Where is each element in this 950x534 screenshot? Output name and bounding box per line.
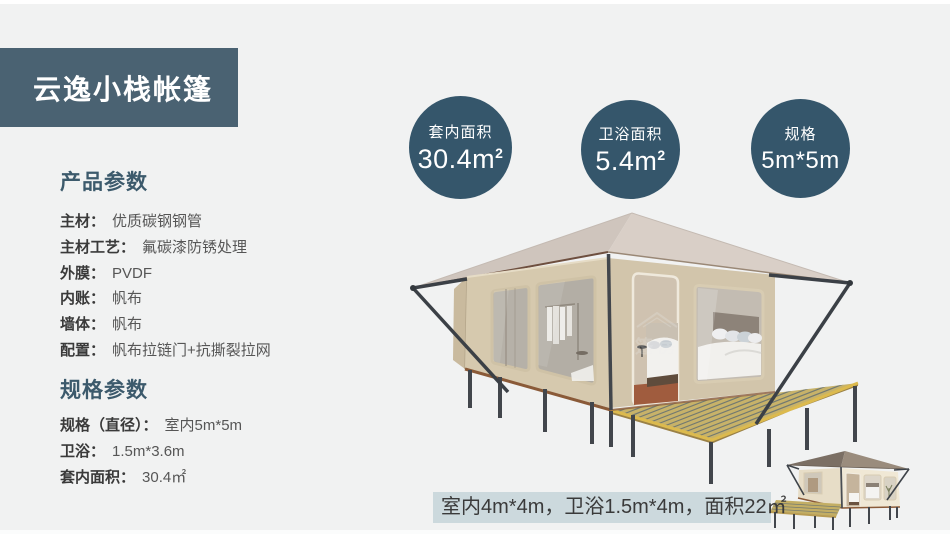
param-row-wall: 墙体：帆布 bbox=[60, 312, 380, 338]
thumb-roof bbox=[787, 451, 909, 469]
stat-circle-spec: 规格 5m*5m bbox=[751, 99, 850, 198]
product-slide: 云逸小栈帐篷 产品参数 主材：优质碳钢钢管 主材工艺：氟碳漆防锈处理 外膜：PV… bbox=[0, 0, 950, 534]
svg-text:篷 房: 篷 房 bbox=[635, 336, 676, 357]
tent-right-wall bbox=[608, 258, 775, 408]
section-title-spec: 规格参数 bbox=[60, 374, 380, 404]
top-divider bbox=[0, 0, 950, 4]
caption-bar: 室内4m*4m，卫浴1.5m*4m，面积22㎡ bbox=[433, 492, 771, 523]
bottom-divider bbox=[0, 530, 950, 534]
spec-params-section: 规格参数 规格（直径）：室内5m*5m 卫浴：1.5m*3.6m 套内面积：30… bbox=[60, 374, 380, 490]
title-banner: 云逸小栈帐篷 bbox=[0, 48, 238, 127]
param-row-inner-tent: 内账：帆布 bbox=[60, 286, 380, 312]
section-title-product: 产品参数 bbox=[60, 166, 380, 196]
product-params-section: 产品参数 主材：优质碳钢钢管 主材工艺：氟碳漆防锈处理 外膜：PVDF 内账：帆… bbox=[60, 166, 380, 364]
tent-left-wall bbox=[465, 258, 610, 408]
param-row-material: 主材：优质碳钢钢管 bbox=[60, 209, 380, 235]
param-row-process: 主材工艺：氟碳漆防锈处理 bbox=[60, 235, 380, 261]
thumbnail-tent-image bbox=[770, 438, 950, 534]
param-row-config: 配置：帆布拉链门+抗撕裂拉网 bbox=[60, 338, 380, 364]
page-title: 云逸小栈帐篷 bbox=[33, 68, 213, 108]
param-row-outer-membrane: 外膜：PVDF bbox=[60, 261, 380, 287]
param-row-bathroom: 卫浴：1.5m*3.6m bbox=[60, 439, 380, 465]
param-row-size: 规格（直径）：室内5m*5m bbox=[60, 413, 380, 439]
stat-circle-inner-area: 套内面积 30.4m2 bbox=[409, 96, 512, 199]
caption-text: 室内4m*4m，卫浴1.5m*4m，面积22㎡ bbox=[441, 496, 787, 518]
stat-circle-bath-area: 卫浴面积 5.4m2 bbox=[581, 100, 680, 199]
param-row-inner-area: 套内面积：30.4㎡ bbox=[60, 465, 380, 491]
